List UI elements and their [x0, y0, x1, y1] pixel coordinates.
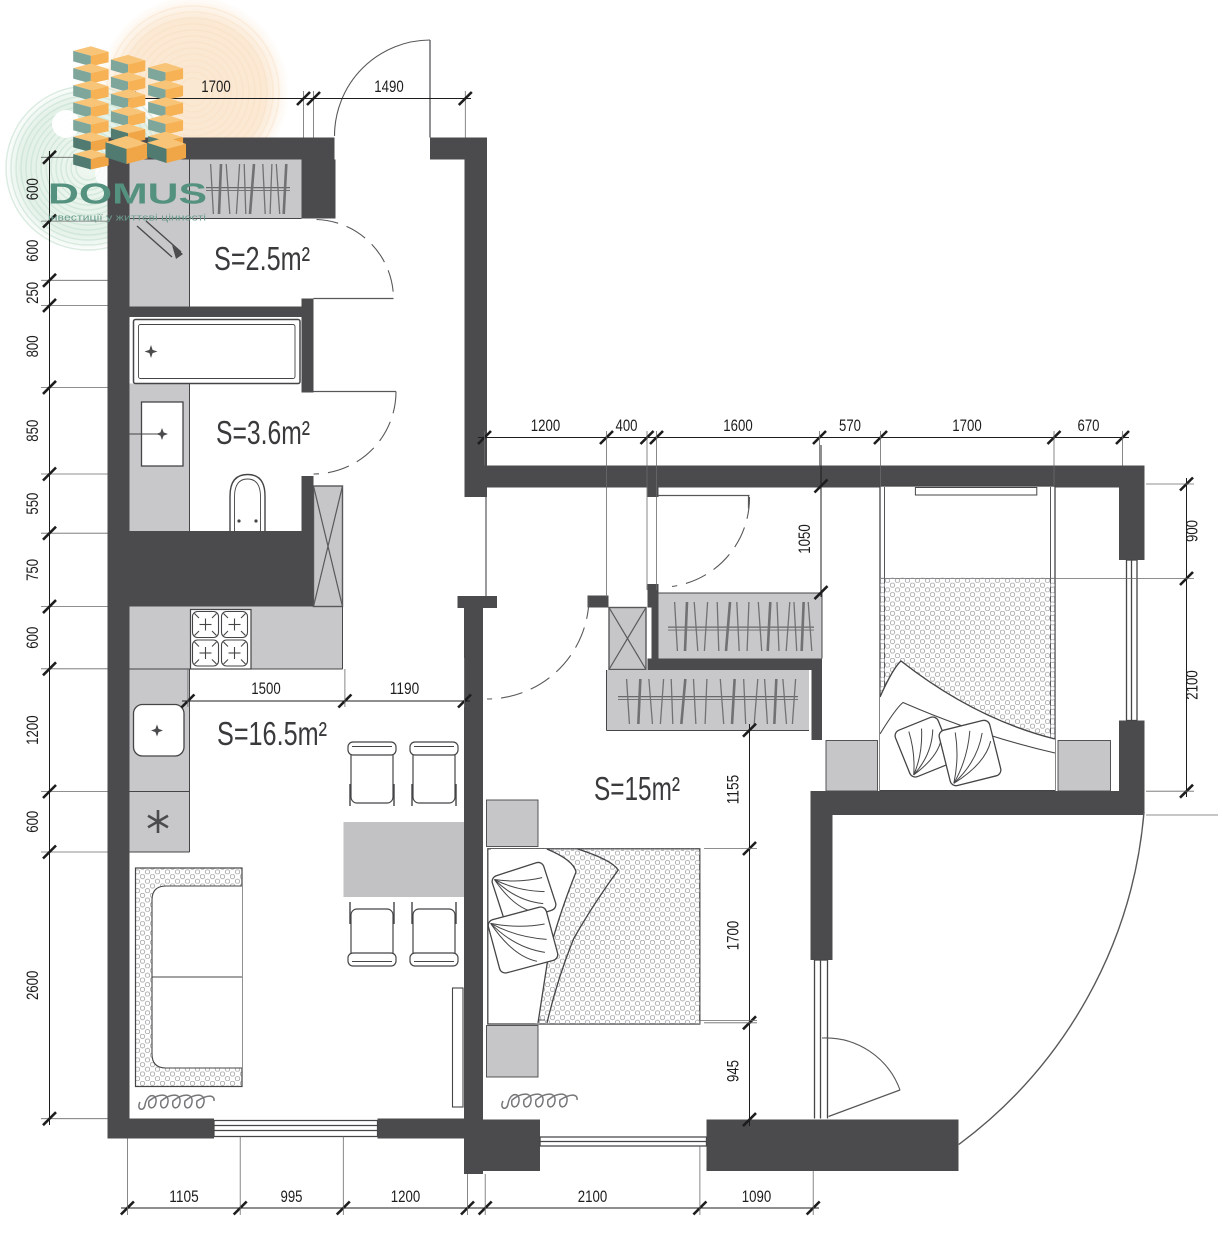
svg-text:1090: 1090 [742, 1187, 771, 1206]
svg-text:2600: 2600 [23, 971, 42, 1000]
svg-text:800: 800 [23, 335, 42, 357]
svg-text:1500: 1500 [251, 679, 280, 698]
svg-text:1050: 1050 [795, 524, 814, 553]
svg-text:2100: 2100 [1183, 670, 1202, 699]
svg-text:1190: 1190 [390, 679, 419, 698]
svg-text:1600: 1600 [723, 416, 752, 435]
svg-text:S=2.5m²: S=2.5m² [214, 240, 310, 277]
svg-text:інвестиції у життєві цінності: інвестиції у життєві цінності [48, 213, 206, 224]
svg-text:750: 750 [23, 559, 42, 581]
svg-text:600: 600 [23, 240, 42, 262]
svg-text:945: 945 [724, 1060, 743, 1082]
svg-text:850: 850 [23, 420, 42, 442]
svg-text:1700: 1700 [724, 921, 743, 950]
svg-text:1105: 1105 [169, 1187, 198, 1206]
svg-text:995: 995 [281, 1187, 303, 1206]
svg-text:S=3.6m²: S=3.6m² [216, 414, 310, 451]
svg-text:1700: 1700 [952, 416, 981, 435]
svg-text:1700: 1700 [201, 77, 230, 96]
svg-text:250: 250 [23, 282, 42, 304]
svg-text:DOMUS: DOMUS [48, 179, 207, 211]
svg-text:1200: 1200 [531, 416, 560, 435]
svg-text:1200: 1200 [391, 1187, 420, 1206]
svg-text:600: 600 [23, 627, 42, 649]
svg-text:1490: 1490 [374, 77, 403, 96]
svg-text:570: 570 [839, 416, 861, 435]
svg-text:900: 900 [1183, 520, 1202, 542]
svg-text:S=15m²: S=15m² [594, 770, 680, 807]
svg-text:670: 670 [1078, 416, 1100, 435]
svg-text:1200: 1200 [23, 715, 42, 744]
svg-text:2100: 2100 [578, 1187, 607, 1206]
svg-text:550: 550 [23, 493, 42, 515]
svg-text:600: 600 [23, 178, 42, 200]
svg-text:1155: 1155 [724, 775, 743, 804]
svg-text:S=16.5m²: S=16.5m² [217, 715, 327, 752]
svg-text:600: 600 [23, 811, 42, 833]
svg-text:400: 400 [616, 416, 638, 435]
